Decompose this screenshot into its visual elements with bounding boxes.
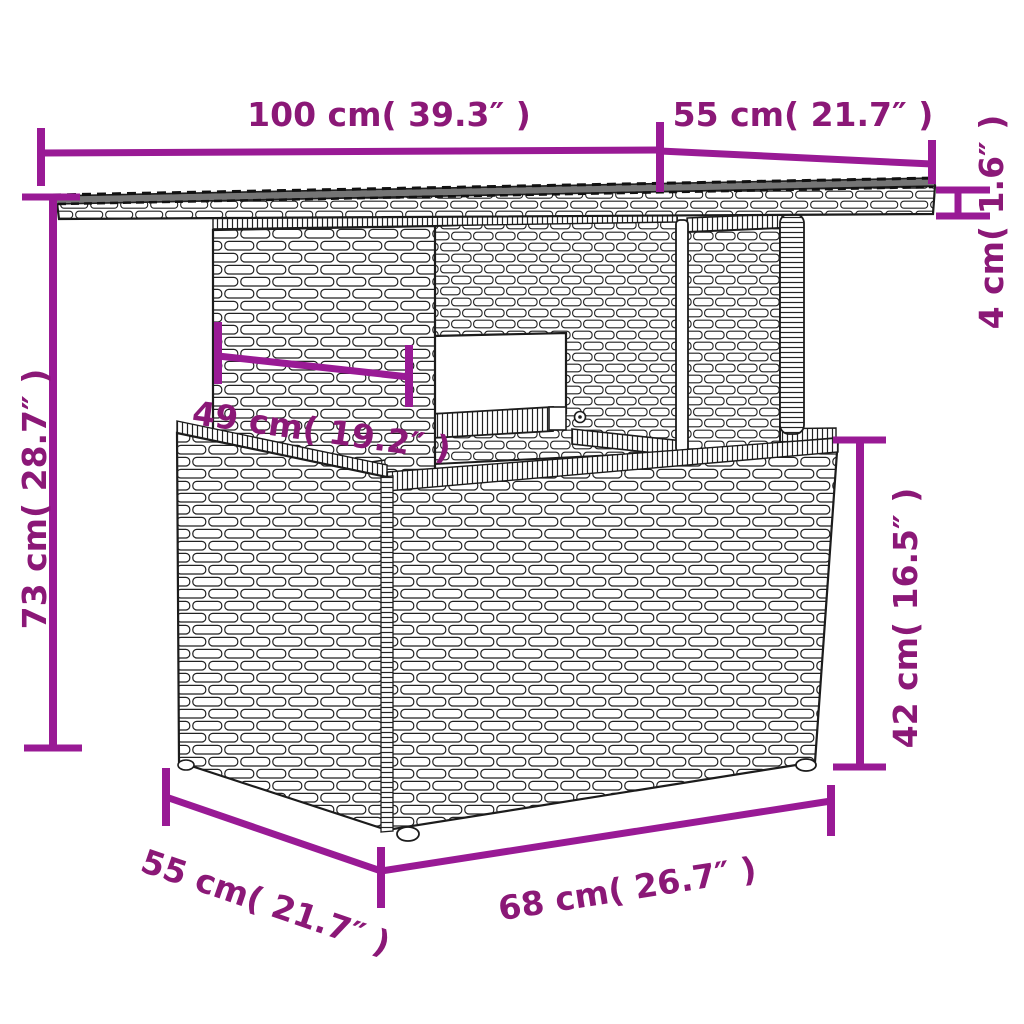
table-foot bbox=[178, 760, 194, 770]
dim-base-height-label: 42 cm( 16.5″ ) bbox=[886, 488, 925, 749]
base-left-face bbox=[177, 433, 387, 830]
stretcher-knob-center bbox=[578, 415, 582, 419]
right-support-wrapped-leg bbox=[780, 214, 804, 434]
dim-tabletop-thickness-label: 4 cm( 1.6″ ) bbox=[972, 115, 1011, 330]
dim-tabletop-width-label: 100 cm( 39.3″ ) bbox=[247, 95, 531, 134]
product-dimension-diagram: 100 cm( 39.3″ ) 55 cm( 21.7″ ) 4 cm( 1.6… bbox=[0, 0, 1024, 1024]
stretcher-end-block bbox=[549, 407, 566, 430]
base-corner-wrap bbox=[381, 476, 393, 832]
right-support-front-face bbox=[687, 228, 780, 452]
dim-tabletop-depth-label: 55 cm( 21.7″ ) bbox=[673, 95, 934, 134]
dimension-diagram-canvas: 100 cm( 39.3″ ) 55 cm( 21.7″ ) 4 cm( 1.6… bbox=[0, 0, 1024, 1024]
dim-overall-height-label: 73 cm( 28.7″ ) bbox=[15, 369, 54, 630]
pedestal-window-opening bbox=[433, 333, 566, 414]
table-foot bbox=[397, 827, 419, 841]
table-foot bbox=[796, 759, 816, 771]
right-support-pole bbox=[676, 220, 688, 452]
